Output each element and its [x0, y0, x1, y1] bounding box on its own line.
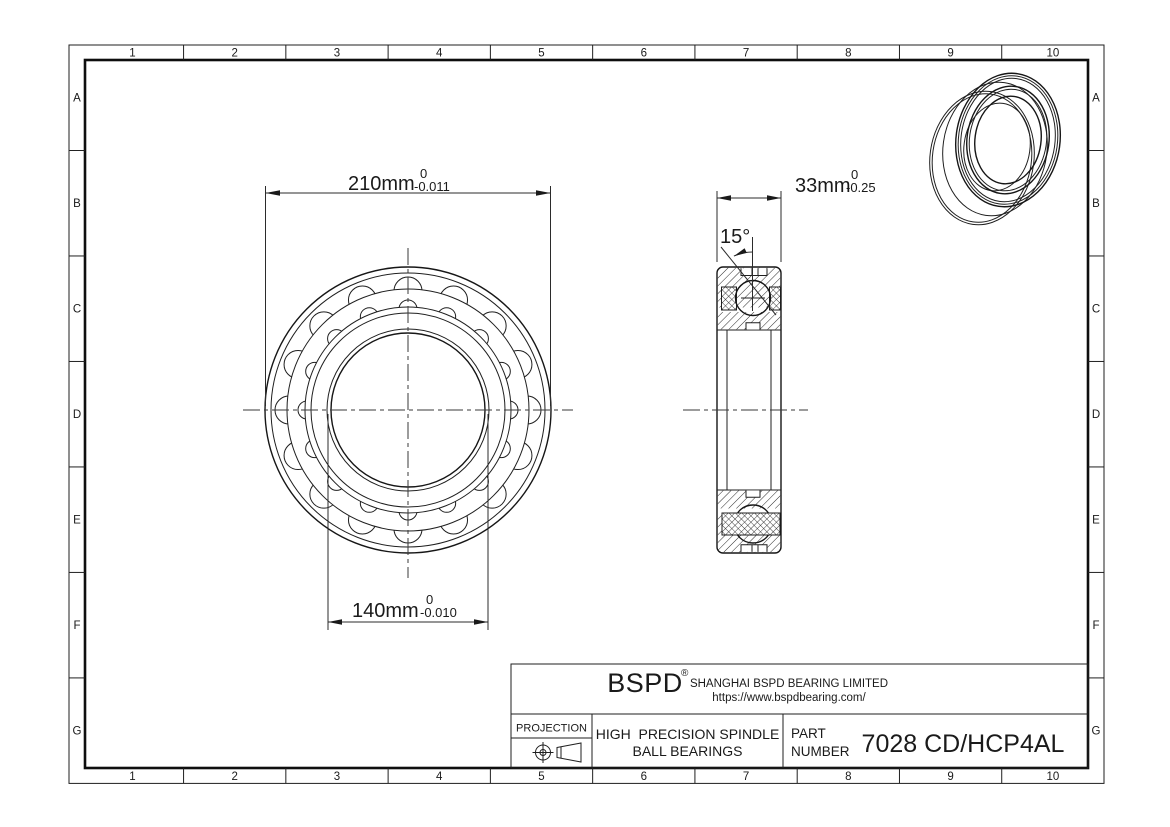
grid-column-label: 5 — [538, 771, 544, 783]
cage-section-bottom — [722, 513, 780, 535]
grid-column-label: 8 — [845, 771, 851, 783]
company-website: https://www.bspdbearing.com/ — [712, 692, 866, 704]
grid-row-label: F — [1092, 620, 1099, 632]
grid-reference-band: 1122334455667788991010AABBCCDDEEFFGG — [69, 45, 1104, 783]
grid-column-label: 1 — [129, 48, 135, 60]
ball-arc — [348, 506, 376, 534]
title-block: BSPD ® SHANGHAI BSPD BEARING LIMITED htt… — [511, 664, 1088, 768]
grid-column-label: 9 — [947, 771, 953, 783]
grid-column-label: 7 — [743, 771, 749, 783]
ball-arc — [504, 350, 532, 378]
grid-column-label: 3 — [334, 771, 340, 783]
grid-column-label: 8 — [845, 48, 851, 60]
grid-row-label: G — [1092, 726, 1101, 738]
product-line-2: BALL BEARINGS — [633, 743, 743, 759]
projection-symbol-icon — [533, 742, 582, 763]
bore-value: 140mm — [352, 600, 419, 622]
ball-arc-inner — [306, 362, 324, 380]
grid-column-label: 7 — [743, 48, 749, 60]
front-view — [243, 248, 573, 578]
ball-arc — [284, 350, 312, 378]
ball-arc-inner — [438, 308, 456, 326]
section-view: 15° — [683, 226, 808, 553]
ball-arc — [478, 480, 506, 508]
grid-column-label: 10 — [1046, 771, 1059, 783]
grid-column-label: 9 — [947, 48, 953, 60]
bore-tol-lower: -0.010 — [420, 605, 457, 620]
grid-column-label: 2 — [232, 771, 238, 783]
drawing-page: 1122334455667788991010AABBCCDDEEFFGG 210… — [0, 0, 1170, 827]
grid-column-label: 3 — [334, 48, 340, 60]
ball-arc-inner — [360, 308, 378, 326]
inner-frame — [85, 60, 1088, 768]
grid-row-label: D — [1092, 409, 1100, 421]
ball-arc — [284, 442, 312, 470]
od-value: 210mm — [348, 173, 415, 195]
outer-frame — [69, 45, 1104, 783]
grid-column-label: 6 — [641, 48, 647, 60]
part-label-line1: PART — [791, 726, 826, 741]
projection-label: PROJECTION — [516, 723, 587, 735]
part-number: 7028 CD/HCP4AL — [862, 730, 1065, 758]
part-label-line2: NUMBER — [791, 744, 850, 759]
ball-arc — [348, 286, 376, 314]
grid-column-label: 1 — [129, 771, 135, 783]
grid-row-label: E — [73, 515, 81, 527]
engineering-drawing-canvas: 1122334455667788991010AABBCCDDEEFFGG 210… — [0, 0, 1170, 827]
ball-arc-inner — [492, 362, 510, 380]
width-value: 33mm — [795, 175, 851, 197]
grid-row-label: B — [1092, 198, 1100, 210]
product-line-1: HIGH PRECISION SPINDLE — [596, 726, 780, 742]
grid-row-label: A — [1092, 93, 1100, 105]
registered-mark: ® — [681, 668, 689, 679]
grid-column-label: 10 — [1046, 48, 1059, 60]
ball-arc — [440, 286, 468, 314]
drawing-frame: 1122334455667788991010AABBCCDDEEFFGG — [69, 45, 1104, 783]
ball-arc — [504, 442, 532, 470]
od-tol-lower: -0.011 — [414, 179, 450, 194]
grid-row-label: D — [73, 409, 81, 421]
grid-column-label: 4 — [436, 48, 443, 60]
grid-row-label: A — [73, 93, 81, 105]
contact-angle-value: 15° — [720, 226, 750, 248]
grid-row-label: F — [73, 620, 80, 632]
grid-row-label: G — [73, 726, 82, 738]
bspd-logo: BSPD — [607, 668, 683, 698]
ball-arc-inner — [492, 440, 510, 458]
grid-column-label: 6 — [641, 771, 647, 783]
grid-row-label: C — [1092, 304, 1100, 316]
isometric-view — [921, 66, 1069, 231]
grid-row-label: C — [73, 304, 81, 316]
grid-row-label: B — [73, 198, 81, 210]
grid-column-label: 5 — [538, 48, 544, 60]
grid-column-label: 4 — [436, 771, 443, 783]
width-tol-lower: -0.25 — [846, 180, 876, 195]
ball-arc-inner — [306, 440, 324, 458]
ball-arc — [478, 312, 506, 340]
grid-row-label: E — [1092, 515, 1100, 527]
ball-arc — [440, 506, 468, 534]
ball-arc — [310, 480, 338, 508]
grid-column-label: 2 — [232, 48, 238, 60]
ball-arc — [310, 312, 338, 340]
ball-arc-inner — [360, 494, 378, 512]
ball-arc-inner — [438, 494, 456, 512]
company-name: SHANGHAI BSPD BEARING LIMITED — [690, 678, 888, 690]
